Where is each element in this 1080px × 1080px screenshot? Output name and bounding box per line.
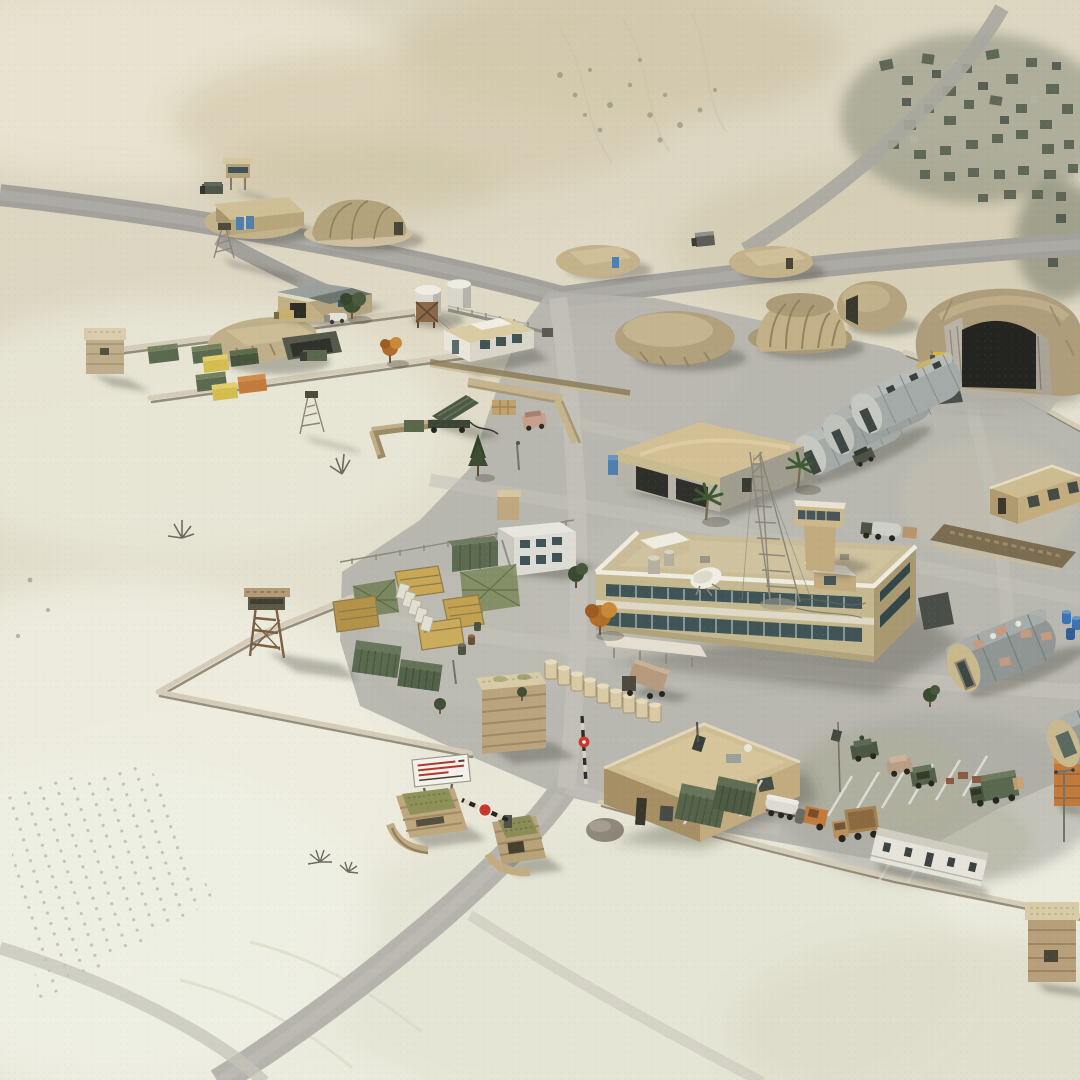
base-render bbox=[0, 0, 1080, 1080]
film-grain bbox=[0, 0, 1080, 1080]
scene-viewport[interactable]: Desert Military Base — 3D Aerial Render bbox=[0, 0, 1080, 1080]
